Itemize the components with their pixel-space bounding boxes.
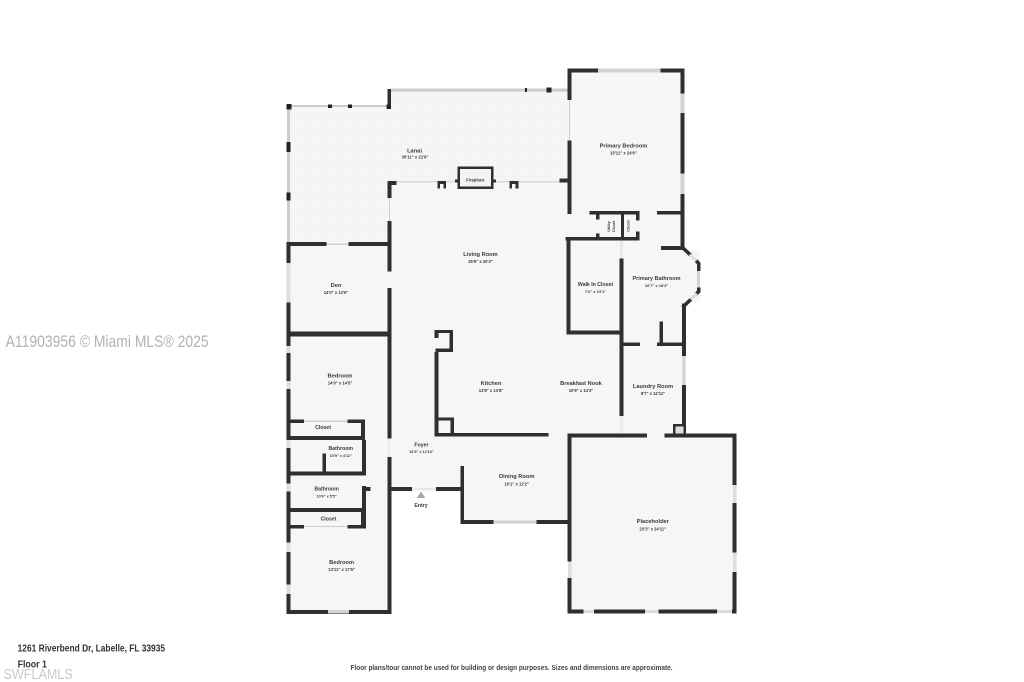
svg-text:Living Room: Living Room — [463, 252, 497, 258]
svg-text:Breakfast Nook: Breakfast Nook — [560, 381, 603, 387]
svg-text:Bedroom: Bedroom — [328, 373, 353, 379]
svg-text:Dining Room: Dining Room — [499, 474, 534, 480]
svg-text:23'3" x 24'11": 23'3" x 24'11" — [639, 526, 666, 531]
svg-text:16'3" x 12'10": 16'3" x 12'10" — [409, 450, 434, 454]
svg-text:10'6" x 5'5": 10'6" x 5'5" — [317, 495, 337, 499]
svg-text:8'7" x 12'11": 8'7" x 12'11" — [641, 391, 665, 396]
svg-text:Foyer: Foyer — [414, 443, 428, 449]
svg-text:Utility: Utility — [607, 220, 611, 231]
svg-text:SWFLAMLS: SWFLAMLS — [4, 667, 73, 682]
svg-text:Bathroom: Bathroom — [329, 446, 354, 452]
svg-text:Primary Bedroom: Primary Bedroom — [600, 143, 648, 149]
svg-text:10'5" x 4'11": 10'5" x 4'11" — [330, 454, 352, 458]
svg-text:A11903956 © Miami MLS® 2025: A11903956 © Miami MLS® 2025 — [6, 332, 209, 351]
svg-text:Placeholder: Placeholder — [637, 519, 670, 525]
svg-text:13'11" x 17'5": 13'11" x 17'5" — [328, 567, 355, 572]
svg-text:15'11" x 24'6": 15'11" x 24'6" — [610, 151, 637, 156]
svg-text:14'0" x 12'6": 14'0" x 12'6" — [324, 290, 349, 295]
svg-text:1261 Riverbend Dr, Labelle, FL: 1261 Riverbend Dr, Labelle, FL 33935 — [18, 643, 166, 654]
svg-text:Entry: Entry — [414, 503, 427, 509]
svg-text:Closet: Closet — [321, 516, 337, 522]
svg-text:13'8" x 13'8": 13'8" x 13'8" — [479, 388, 504, 393]
svg-text:10'7" x 18'3": 10'7" x 18'3" — [645, 283, 669, 288]
svg-text:10'9" x 14'3": 10'9" x 14'3" — [569, 388, 594, 393]
svg-text:Lanai: Lanai — [407, 148, 422, 154]
svg-text:30'11" x 21'9": 30'11" x 21'9" — [402, 155, 429, 160]
svg-text:Walk In Closet: Walk In Closet — [578, 282, 614, 288]
svg-text:Floor plans/tour cannot be use: Floor plans/tour cannot be used for buil… — [351, 663, 673, 672]
svg-text:10'1" x 12'2": 10'1" x 12'2" — [504, 481, 529, 486]
svg-text:Den: Den — [331, 283, 342, 289]
svg-text:14'9" x 14'5": 14'9" x 14'5" — [328, 381, 353, 386]
svg-text:Fireplace: Fireplace — [466, 177, 485, 182]
svg-text:Closet: Closet — [627, 219, 631, 231]
svg-text:Laundry Room: Laundry Room — [633, 384, 673, 390]
svg-text:Bathroom: Bathroom — [314, 487, 339, 493]
svg-text:Closet: Closet — [315, 425, 331, 431]
svg-text:Bedroom: Bedroom — [329, 560, 354, 566]
svg-text:25'6" x 20'3": 25'6" x 20'3" — [468, 259, 493, 264]
svg-text:Closet: Closet — [612, 220, 616, 232]
svg-text:7'2" x 13'1": 7'2" x 13'1" — [585, 289, 606, 294]
svg-text:Kitchen: Kitchen — [481, 381, 502, 387]
svg-text:Primary Bathroom: Primary Bathroom — [633, 276, 681, 282]
